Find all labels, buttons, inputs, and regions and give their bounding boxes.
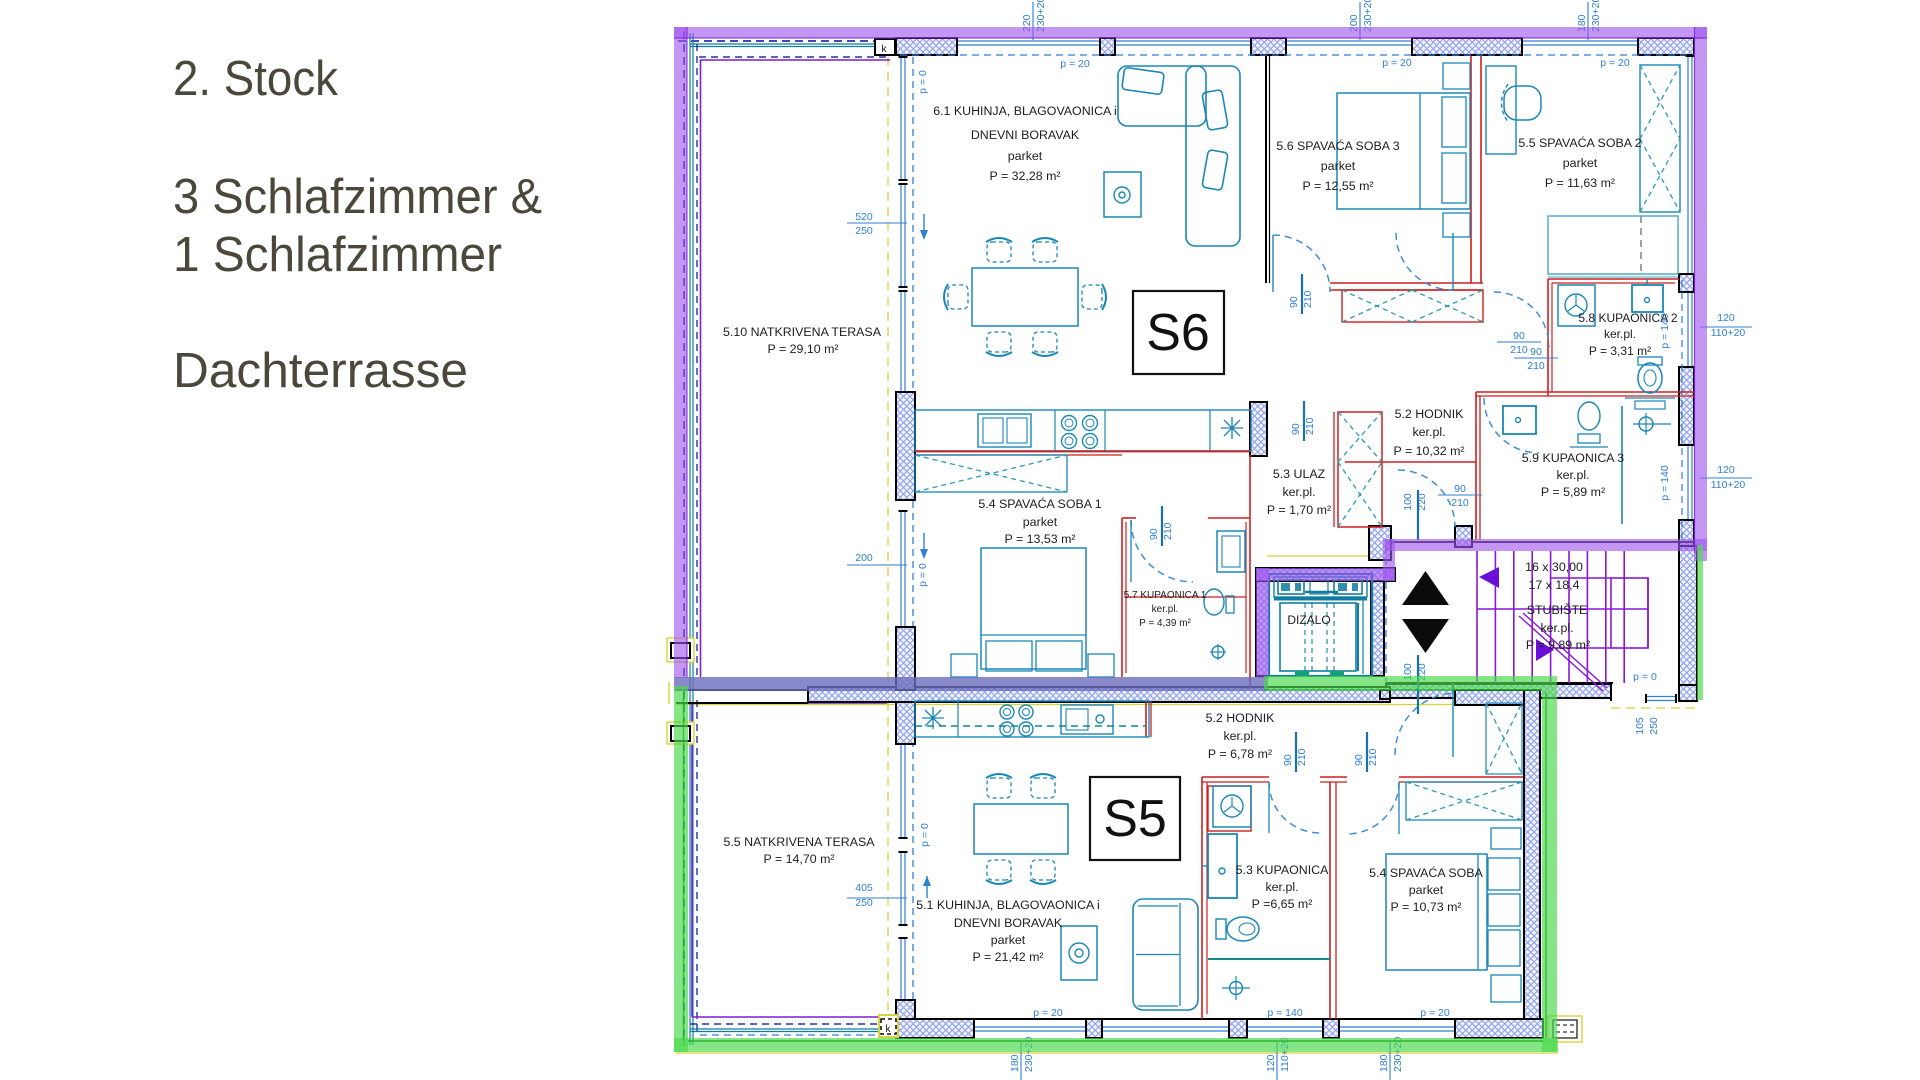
svg-text:90: 90 bbox=[1530, 346, 1542, 358]
svg-text:parket: parket bbox=[1023, 515, 1058, 529]
svg-text:90: 90 bbox=[1454, 483, 1466, 495]
svg-text:P = 5,89 m²: P = 5,89 m² bbox=[1541, 485, 1605, 499]
svg-text:1 Schlafzimmer: 1 Schlafzimmer bbox=[173, 228, 502, 282]
svg-text:P = 10,73 m²: P = 10,73 m² bbox=[1390, 900, 1461, 914]
svg-text:parket: parket bbox=[991, 933, 1026, 947]
svg-text:520: 520 bbox=[855, 211, 873, 223]
svg-text:5.2 HODNIK: 5.2 HODNIK bbox=[1206, 711, 1276, 725]
svg-text:p = 20: p = 20 bbox=[1033, 1007, 1063, 1019]
svg-text:100: 100 bbox=[1402, 493, 1414, 511]
svg-text:5.6 SPAVAĆA SOBA 3: 5.6 SPAVAĆA SOBA 3 bbox=[1276, 138, 1399, 153]
svg-text:120: 120 bbox=[1717, 312, 1735, 324]
svg-text:p = 20: p = 20 bbox=[1060, 58, 1090, 70]
svg-text:ker.pl.: ker.pl. bbox=[1604, 327, 1636, 341]
svg-text:P =6,65 m²: P =6,65 m² bbox=[1252, 897, 1313, 911]
svg-text:ker.pl.: ker.pl. bbox=[1540, 621, 1573, 635]
svg-text:250: 250 bbox=[1648, 717, 1660, 735]
svg-text:180: 180 bbox=[1378, 1054, 1390, 1072]
svg-text:90: 90 bbox=[1282, 754, 1294, 766]
svg-text:180: 180 bbox=[1009, 1054, 1021, 1072]
svg-text:90: 90 bbox=[1513, 330, 1525, 342]
svg-text:p = 20: p = 20 bbox=[1382, 57, 1412, 69]
svg-text:250: 250 bbox=[855, 225, 873, 237]
svg-text:Dachterrasse: Dachterrasse bbox=[173, 344, 468, 398]
svg-text:250: 250 bbox=[855, 897, 873, 909]
svg-text:110+20: 110+20 bbox=[1711, 479, 1746, 491]
svg-text:parket: parket bbox=[1409, 883, 1444, 897]
svg-text:p = 0: p = 0 bbox=[917, 70, 929, 94]
svg-text:p = 140: p = 140 bbox=[1659, 465, 1671, 500]
svg-text:p = 0: p = 0 bbox=[1633, 671, 1657, 683]
svg-text:5.2 HODNIK: 5.2 HODNIK bbox=[1395, 407, 1465, 421]
svg-text:P = 21,42 m²: P = 21,42 m² bbox=[972, 950, 1043, 964]
svg-text:DIZALO: DIZALO bbox=[1287, 613, 1330, 627]
svg-text:ker.pl.: ker.pl. bbox=[1282, 485, 1315, 499]
svg-text:90: 90 bbox=[1288, 296, 1300, 308]
svg-text:110+20: 110+20 bbox=[1711, 327, 1746, 339]
svg-text:DNEVNI BORAVAK: DNEVNI BORAVAK bbox=[954, 916, 1063, 930]
svg-text:5.10 NATKRIVENA TERASA: 5.10 NATKRIVENA TERASA bbox=[723, 325, 882, 339]
svg-text:210: 210 bbox=[1451, 497, 1469, 509]
svg-text:16 x 30,00: 16 x 30,00 bbox=[1525, 560, 1583, 574]
svg-text:5.4 SPAVAĆA SOBA: 5.4 SPAVAĆA SOBA bbox=[1369, 865, 1483, 880]
svg-text:405: 405 bbox=[855, 882, 873, 894]
svg-text:parket: parket bbox=[1563, 156, 1598, 170]
svg-text:105: 105 bbox=[1634, 717, 1646, 735]
svg-text:ker.pl.: ker.pl. bbox=[1556, 468, 1589, 482]
svg-text:210: 210 bbox=[1510, 344, 1528, 356]
svg-text:p = 0: p = 0 bbox=[919, 823, 931, 847]
svg-text:p = 20: p = 20 bbox=[1600, 57, 1630, 69]
svg-text:210: 210 bbox=[1162, 522, 1174, 540]
svg-text:p = 20: p = 20 bbox=[1420, 1007, 1450, 1019]
svg-text:210: 210 bbox=[1302, 290, 1314, 308]
svg-text:210: 210 bbox=[1304, 417, 1316, 435]
svg-text:120: 120 bbox=[1265, 1054, 1277, 1072]
svg-text:P = 13,53 m²: P = 13,53 m² bbox=[1004, 532, 1075, 546]
svg-text:5.4 SPAVAĆA SOBA 1: 5.4 SPAVAĆA SOBA 1 bbox=[978, 496, 1101, 511]
svg-text:P = 10,32 m²: P = 10,32 m² bbox=[1393, 444, 1464, 458]
svg-text:5.5 SPAVAĆA SOBA 2: 5.5 SPAVAĆA SOBA 2 bbox=[1518, 135, 1641, 150]
svg-text:17 x 18,4: 17 x 18,4 bbox=[1529, 578, 1580, 592]
svg-text:S6: S6 bbox=[1146, 304, 1210, 362]
svg-text:ker.pl.: ker.pl. bbox=[1223, 729, 1256, 743]
svg-text:P = 4,39 m²: P = 4,39 m² bbox=[1139, 618, 1191, 629]
svg-text:P = 12,55 m²: P = 12,55 m² bbox=[1302, 179, 1373, 193]
svg-text:STUBIŠTE: STUBIŠTE bbox=[1527, 602, 1588, 617]
svg-text:210: 210 bbox=[1296, 748, 1308, 766]
svg-text:200: 200 bbox=[855, 552, 873, 564]
svg-text:p = 140: p = 140 bbox=[1659, 313, 1671, 348]
svg-text:5.3 ULAZ: 5.3 ULAZ bbox=[1273, 467, 1326, 481]
svg-text:P = 11,63 m²: P = 11,63 m² bbox=[1545, 176, 1615, 190]
svg-text:P = 29,10 m²: P = 29,10 m² bbox=[767, 342, 838, 356]
svg-text:ker.pl.: ker.pl. bbox=[1265, 880, 1298, 894]
svg-text:ker.pl.: ker.pl. bbox=[1152, 604, 1179, 615]
svg-text:P = 9,89 m²: P = 9,89 m² bbox=[1526, 638, 1590, 652]
svg-text:P = 14,70 m²: P = 14,70 m² bbox=[763, 852, 834, 866]
svg-text:P = 1,70 m²: P = 1,70 m² bbox=[1267, 503, 1331, 517]
svg-text:5.9 KUPAONICA 3: 5.9 KUPAONICA 3 bbox=[1522, 451, 1624, 465]
svg-text:parket: parket bbox=[1008, 149, 1043, 163]
svg-text:2. Stock: 2. Stock bbox=[173, 52, 338, 106]
svg-text:5.7 KUPAONICA 1: 5.7 KUPAONICA 1 bbox=[1124, 590, 1207, 601]
svg-text:p = 0: p = 0 bbox=[917, 563, 929, 587]
svg-text:p = 140: p = 140 bbox=[1267, 1007, 1302, 1019]
svg-text:90: 90 bbox=[1148, 528, 1160, 540]
svg-text:6.1 KUHINJA, BLAGOVAONICA i: 6.1 KUHINJA, BLAGOVAONICA i bbox=[933, 104, 1117, 118]
svg-text:5.3 KUPAONICA: 5.3 KUPAONICA bbox=[1236, 863, 1329, 877]
svg-text:DNEVNI BORAVAK: DNEVNI BORAVAK bbox=[971, 128, 1080, 142]
svg-text:P = 3,31 m²: P = 3,31 m² bbox=[1589, 344, 1651, 358]
svg-text:P = 32,28 m²: P = 32,28 m² bbox=[989, 169, 1060, 183]
svg-text:120: 120 bbox=[1717, 464, 1735, 476]
svg-text:210: 210 bbox=[1367, 748, 1379, 766]
svg-text:P = 6,78 m²: P = 6,78 m² bbox=[1208, 747, 1272, 761]
svg-text:5.1 KUHINJA, BLAGOVAONICA i: 5.1 KUHINJA, BLAGOVAONICA i bbox=[916, 898, 1100, 912]
svg-text:parket: parket bbox=[1321, 159, 1356, 173]
svg-text:ker.pl.: ker.pl. bbox=[1412, 425, 1445, 439]
svg-text:S5: S5 bbox=[1103, 790, 1167, 848]
svg-text:210: 210 bbox=[1527, 360, 1545, 372]
svg-text:90: 90 bbox=[1353, 754, 1365, 766]
svg-text:5.5 NATKRIVENA TERASA: 5.5 NATKRIVENA TERASA bbox=[723, 835, 875, 849]
svg-text:90: 90 bbox=[1290, 423, 1302, 435]
svg-text:3 Schlafzimmer &: 3 Schlafzimmer & bbox=[173, 170, 542, 224]
